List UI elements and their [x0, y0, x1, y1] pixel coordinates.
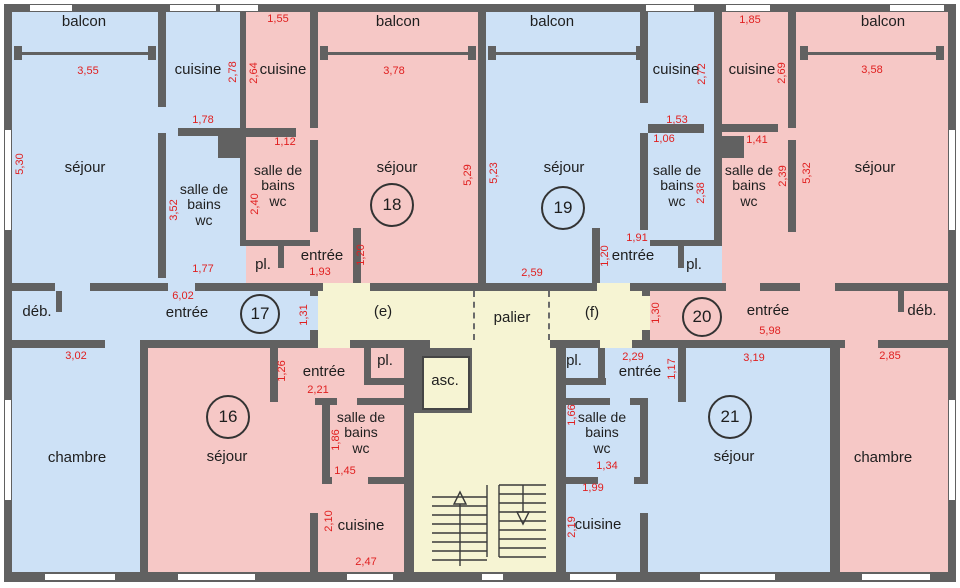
wall — [310, 12, 318, 128]
dimension-label: 1,66 — [566, 404, 578, 425]
dimension-label: 2,85 — [879, 350, 900, 362]
room-label-sdb-17: salle de bains wc — [180, 182, 228, 228]
window — [700, 574, 775, 580]
dimension-label: 2,29 — [622, 351, 643, 363]
dimension-label: 5,30 — [14, 153, 26, 174]
wall — [310, 330, 318, 340]
room-label-cuisine-20: cuisine — [729, 62, 776, 79]
room-label-sejour-18: séjour — [377, 160, 418, 177]
wall — [714, 12, 722, 246]
dimension-label: 1,20 — [355, 244, 367, 265]
balcony-rail-post — [14, 46, 22, 60]
window — [890, 5, 944, 11]
room-label-balcon-19: balcon — [530, 14, 574, 31]
window — [646, 5, 694, 11]
room-label-entree-21: entrée — [619, 364, 662, 381]
wall — [632, 340, 845, 348]
balcony-rail — [14, 52, 156, 55]
window — [178, 574, 255, 580]
wall — [640, 133, 648, 230]
dimension-label: 3,78 — [383, 65, 404, 77]
wall — [310, 140, 318, 232]
room-label-cuisine-16: cuisine — [338, 518, 385, 535]
balcony-rail-post — [148, 46, 156, 60]
dimension-label: 5,23 — [488, 162, 500, 183]
wall — [140, 340, 318, 348]
dimension-label: 2,72 — [696, 63, 708, 84]
room-label-entree-19: entrée — [612, 248, 655, 265]
dimension-label: 5,32 — [801, 162, 813, 183]
wall — [195, 283, 323, 291]
unit-circle-16: 16 — [206, 395, 250, 439]
room-label-pl-16: pl. — [377, 353, 393, 370]
dimension-label: 1,45 — [334, 465, 355, 477]
dimension-label: 1,85 — [739, 14, 760, 26]
window — [347, 574, 393, 580]
wall — [788, 12, 796, 128]
wall — [370, 283, 597, 291]
window — [726, 5, 770, 11]
wall — [678, 348, 686, 402]
balcony-rail — [488, 52, 644, 55]
room-label-pl-21: pl. — [566, 353, 582, 370]
dimension-label: 3,19 — [743, 352, 764, 364]
window — [220, 5, 258, 11]
wall — [310, 283, 318, 296]
room-label-ascenseur: asc. — [431, 373, 459, 390]
wall — [642, 283, 650, 296]
room-label-balcon-20: balcon — [861, 14, 905, 31]
room-label-cuisine-21: cuisine — [575, 517, 622, 534]
balcony-rail-post — [636, 46, 644, 60]
corridor-dashed-separator — [473, 291, 475, 340]
room-label-entree-17: entrée — [166, 305, 209, 322]
wall — [478, 4, 486, 283]
dimension-label: 1,06 — [653, 133, 674, 145]
room-corridor — [318, 283, 650, 348]
dimension-label: 6,02 — [172, 290, 193, 302]
dimension-label: 2,78 — [227, 61, 239, 82]
room-label-entree-20: entrée — [747, 303, 790, 320]
window — [45, 574, 115, 580]
wall — [368, 477, 404, 484]
room-label-sejour-17: séjour — [65, 160, 106, 177]
room-label-sdb-18: salle de bains wc — [254, 163, 302, 209]
window — [949, 130, 955, 230]
wall — [878, 340, 948, 348]
room-label-sejour-21: séjour — [714, 449, 755, 466]
dimension-label: 1,53 — [666, 114, 687, 126]
dimension-label: 2,19 — [566, 516, 578, 537]
dimension-label: 1,31 — [298, 304, 310, 325]
dimension-label: 3,58 — [861, 64, 882, 76]
dimension-label: 1,86 — [330, 429, 342, 450]
balcony-rail — [320, 52, 476, 55]
unit-circle-17: 17 — [240, 294, 280, 334]
wall — [642, 330, 650, 340]
window — [170, 5, 216, 11]
window — [5, 400, 11, 500]
room-label-sejour-19: séjour — [544, 160, 585, 177]
room-label-deb-17: déb. — [22, 304, 51, 321]
unit-circle-18: 18 — [370, 183, 414, 227]
corridor-dashed-separator — [548, 291, 550, 340]
dimension-label: 1,17 — [666, 358, 678, 379]
room-label-sejour-16: séjour — [207, 449, 248, 466]
wall — [640, 398, 648, 484]
dimension-label: 1,26 — [276, 360, 288, 381]
wall — [640, 513, 648, 572]
dimension-label: 2,10 — [323, 510, 335, 531]
room-label-sejour-20: séjour — [855, 160, 896, 177]
dimension-label: 1,12 — [274, 136, 295, 148]
wall — [556, 348, 566, 572]
dimension-label: 3,55 — [77, 65, 98, 77]
dimension-label: 1,41 — [746, 134, 767, 146]
dimension-label: 1,99 — [582, 482, 603, 494]
dimension-label: 2,59 — [521, 267, 542, 279]
room-label-chambre-20: chambre — [854, 450, 912, 467]
dimension-label: 2,21 — [307, 384, 328, 396]
room-label-sdb-20: salle de bains wc — [725, 163, 773, 209]
dimension-label: 2,69 — [776, 62, 788, 83]
wall — [278, 246, 284, 268]
room-label-cuisine-17: cuisine — [175, 62, 222, 79]
floor-plan: balconbalconbalconbalconcuisinecuisinecu… — [0, 0, 960, 588]
dimension-label: 1,77 — [192, 263, 213, 275]
room-label-zone-f: (f) — [585, 305, 599, 322]
wall — [722, 124, 778, 132]
dimension-label: 2,38 — [695, 182, 707, 203]
dimension-label: 2,47 — [355, 556, 376, 568]
wall — [830, 348, 840, 572]
dimension-label: 1,93 — [309, 266, 330, 278]
balcony-rail-post — [488, 46, 496, 60]
balcony-rail-post — [468, 46, 476, 60]
wall — [90, 283, 168, 291]
wall — [550, 340, 600, 348]
room-label-entree-16: entrée — [303, 364, 346, 381]
unit-circle-19: 19 — [541, 186, 585, 230]
wall — [158, 12, 166, 107]
wall — [240, 12, 246, 246]
unit-circle-21: 21 — [708, 395, 752, 439]
wall — [12, 283, 55, 291]
room-label-entree-18: entrée — [301, 248, 344, 265]
wall — [357, 398, 404, 405]
dimension-label: 3,02 — [65, 350, 86, 362]
window — [30, 5, 72, 11]
dimension-label: 1,30 — [650, 302, 662, 323]
wall — [322, 398, 330, 484]
unit-circle-20: 20 — [682, 297, 722, 337]
balcony-rail-post — [936, 46, 944, 60]
dimension-label: 1,20 — [599, 245, 611, 266]
wall — [634, 477, 648, 484]
dimension-label: 2,64 — [248, 62, 260, 83]
dimension-label: 1,55 — [267, 13, 288, 25]
window — [949, 400, 955, 500]
room-label-balcon-17: balcon — [62, 14, 106, 31]
room-label-zone-e: (e) — [374, 304, 392, 321]
room-label-sdb-21: salle de bains wc — [578, 410, 626, 456]
wall — [898, 291, 904, 312]
dimension-label: 5,29 — [462, 164, 474, 185]
wall — [140, 348, 148, 572]
window — [570, 574, 616, 580]
wall — [722, 136, 744, 158]
wall — [678, 246, 684, 268]
balcony-rail-post — [320, 46, 328, 60]
dimension-label: 1,34 — [596, 460, 617, 472]
wall — [178, 128, 240, 136]
wall — [364, 378, 404, 385]
room-label-palier: palier — [494, 310, 531, 327]
room-label-balcon-18: balcon — [376, 14, 420, 31]
balcony-rail-post — [800, 46, 808, 60]
balcony-rail — [800, 52, 944, 55]
room-label-sdb-16: salle de bains wc — [337, 410, 385, 456]
wall — [56, 291, 62, 312]
window — [482, 574, 503, 580]
wall — [835, 283, 948, 291]
wall — [350, 340, 430, 348]
room-label-cuisine-18: cuisine — [260, 62, 307, 79]
wall — [218, 136, 240, 158]
room-label-pl-18: pl. — [255, 257, 271, 274]
wall — [158, 133, 166, 278]
dimension-label: 2,39 — [777, 165, 789, 186]
dimension-label: 1,78 — [192, 114, 213, 126]
wall — [760, 283, 800, 291]
window — [862, 574, 930, 580]
room-label-chambre-17: chambre — [48, 450, 106, 467]
room-label-cuisine-19: cuisine — [653, 62, 700, 79]
dimension-label: 3,52 — [168, 199, 180, 220]
room-label-deb-20: déb. — [907, 303, 936, 320]
wall — [12, 340, 105, 348]
room-label-sdb-19: salle de bains wc — [653, 163, 701, 209]
wall — [4, 572, 956, 582]
room-label-pl-19: pl. — [686, 257, 702, 274]
wall — [322, 477, 332, 484]
wall — [310, 513, 318, 572]
wall — [566, 378, 606, 385]
dimension-label: 5,98 — [759, 325, 780, 337]
dimension-label: 1,91 — [626, 232, 647, 244]
wall — [788, 140, 796, 232]
window — [5, 130, 11, 230]
dimension-label: 2,40 — [249, 193, 261, 214]
